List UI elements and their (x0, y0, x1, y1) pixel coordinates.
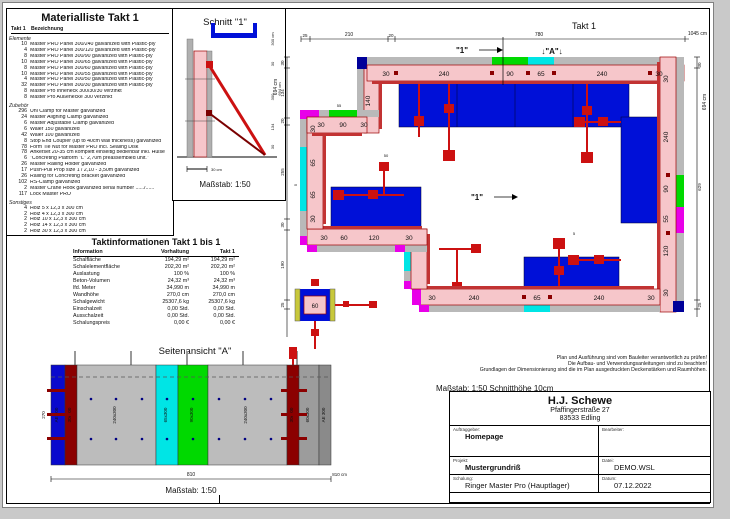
title-block-empty-area (450, 493, 710, 502)
dimension-label: 20 (388, 33, 394, 38)
info-vorhaltung-value: 100 % (137, 271, 189, 278)
info-takt1-value: 100 % (189, 271, 235, 278)
panel-label: 240x300 (112, 406, 117, 424)
file-cell: Datei: DEMO.WSL (599, 457, 710, 474)
title-block-row-formwork: Schalung: Ringer Master Pro (Hauptlager)… (450, 475, 710, 493)
project-cell: Projekt: Mustergrundriß (450, 457, 599, 474)
side-view-scale-label: Maßstab: 1:50 (165, 486, 217, 495)
info-takt1-value: 270,0 cm (189, 292, 235, 299)
wall-segment-label: 30 (647, 295, 655, 302)
side-view-drawing: Seitenansicht "A" AE 300 30x300 240x300 … (39, 343, 351, 501)
top-wall (367, 57, 684, 84)
item-quantity: 117 (7, 192, 30, 198)
info-takt1-value: 194,29 m² (189, 257, 235, 264)
info-takt1-value: 0,00 € (189, 320, 235, 327)
wall-segment-label: 30 (663, 75, 670, 83)
note-line: Grundlagen der Dimensionierung sind die … (353, 367, 707, 373)
takt-info-row: Schalfläche194,29 m²194,29 m² (73, 257, 239, 264)
dimension-label: 30 (280, 222, 285, 228)
info-vorhaltung-value: 194,29 m² (137, 257, 189, 264)
title-block-row-client: Auftraggeber: Homepage Bearbeiter: (450, 426, 710, 457)
dimension-label: 30 (697, 62, 702, 68)
info-vorhaltung-value: 0,00 € (137, 320, 189, 327)
wall-segment-label: 65 (533, 295, 541, 302)
wall-segment-label: 65 (310, 191, 317, 199)
takt-info-row: Auslastung100 %100 % (73, 271, 239, 278)
editor-cell: Bearbeiter: (599, 426, 710, 456)
wall-segment-label: 240 (439, 71, 450, 78)
title-block: H.J. Schewe Pfaffingerstraße 27 83533 Ed… (449, 391, 711, 503)
company-name: H.J. Schewe (450, 395, 710, 407)
push-pull-prop-symbol (206, 61, 265, 155)
info-label: Schalungspreis (73, 320, 137, 327)
material-list-col-qty: Takt 1 (11, 26, 31, 32)
wall-segment-label: 30 (320, 235, 328, 242)
material-list-header: Takt 1 Bezeichnung (11, 26, 169, 34)
dimension-total-label: 694 cm (273, 79, 279, 95)
section-scale-label: Maßstab: 1:50 (199, 180, 251, 189)
info-vorhaltung-value: 34,990 m (137, 285, 189, 292)
takt-info-row: Schalgewicht25307,6 kg25307,6 kg (73, 299, 239, 306)
material-list-col-desc: Bezeichnung (31, 26, 63, 32)
wall-segment-label: 30 (310, 215, 317, 223)
wall-segment-label: 90 (339, 122, 347, 129)
info-takt1-value: 25307,6 kg (189, 299, 235, 306)
panel-label: AE 300 (321, 407, 326, 422)
takt-info-col-information: Information (73, 249, 137, 256)
dimension-label: 30 (280, 60, 285, 66)
wall-segment-label: 90 (506, 71, 514, 78)
material-list-panel: Materialliste Takt 1 Takt 1 Bezeichnung … (6, 8, 174, 236)
takt-info-row: Schalungspreis0,00 €0,00 € (73, 320, 239, 327)
takt-info-panel: Taktinformationen Takt 1 bis 1 Informati… (73, 237, 239, 327)
dimension-label: 190 (280, 261, 285, 269)
info-label: Auslastung (73, 271, 137, 278)
stop-end-label: 60 (312, 304, 319, 310)
info-label: Beton-Volumen (73, 278, 137, 285)
wall-segment-label: 30 (317, 122, 325, 129)
wall-segment-label: 30 (655, 71, 663, 78)
dimension-total-label: 810 cm (332, 472, 347, 477)
client-value: Homepage (453, 432, 596, 441)
dimension-label: 25 (697, 302, 702, 308)
material-list-row: 117Lock Master PRO (7, 192, 173, 198)
dimension-label: 810 (187, 472, 196, 478)
material-list-row: 8Master Pro Außenecke 300 verzinkt (7, 95, 173, 101)
section-view-title: Schnitt "1" (203, 17, 247, 28)
wall-segment-label: 90 (663, 185, 670, 193)
side-view-title: Seitenansicht "A" (159, 346, 232, 357)
dimension-label: 25 (302, 33, 308, 38)
formwork-cell: Schalung: Ringer Master Pro (Hauptlager) (450, 475, 599, 492)
wall-segment-label: 30 (405, 235, 413, 242)
info-vorhaltung-value: 25307,6 kg (137, 299, 189, 306)
panel-label: 240x300 (243, 406, 248, 424)
drawing-sheet-preview: Materialliste Takt 1 Takt 1 Bezeichnung … (0, 0, 730, 519)
takt-info-row: Beton-Volumen24,32 m³24,32 m³ (73, 278, 239, 285)
paper-sheet: Materialliste Takt 1 Takt 1 Bezeichnung … (2, 2, 714, 508)
item-description: Lock Master PRO (30, 192, 173, 198)
takt-info-row: lfd. Meter34,990 m34,990 m (73, 285, 239, 292)
plan-title: Takt 1 (572, 21, 596, 31)
company-street: Pfaffingerstraße 27 (450, 407, 710, 415)
title-block-row-project: Projekt: Mustergrundriß Datei: DEMO.WSL (450, 457, 710, 475)
dimension-label: 55 (337, 103, 342, 108)
item-quantity: 8 (7, 95, 30, 101)
info-label: Wandhöhe (73, 292, 137, 299)
info-vorhaltung-value: 0,00 Std. (137, 306, 189, 313)
date-value: 07.12.2022 (602, 481, 708, 490)
takt-info-title: Taktinformationen Takt 1 bis 1 (73, 237, 239, 247)
wall-segment-label: 30 (310, 125, 317, 133)
section-wall-and-panels (177, 39, 277, 157)
panel-label: 65x300 (163, 407, 168, 422)
section-marker-1: "1" (456, 46, 468, 55)
stop-end-block (295, 279, 377, 349)
info-label: Schalfläche (73, 257, 137, 264)
info-label: Einschalzeit (73, 306, 137, 313)
company-city: 83533 Edling (450, 415, 710, 423)
info-takt1-value: 34,990 m (189, 285, 235, 292)
section-marker-a: ↓"A"↓ (541, 47, 562, 56)
fold-mark (219, 495, 220, 503)
takt-info-col-vorhaltung: Vorhaltung (137, 249, 189, 256)
material-list-title: Materialliste Takt 1 (7, 12, 173, 24)
info-takt1-value: 0,00 Std. (189, 306, 235, 313)
wall-segment-label: 30 (663, 289, 670, 297)
wall-segment-label: 65 (310, 159, 317, 167)
plan-notes: Plan und Ausführung sind vom Bauleiter v… (353, 355, 707, 373)
wall-segment-label: 65 (537, 71, 545, 78)
item-description: Master Pro Außenecke 300 verzinkt (30, 95, 173, 101)
info-vorhaltung-value: 24,32 m³ (137, 278, 189, 285)
file-value: DEMO.WSL (602, 463, 708, 472)
takt-info-header: Information Vorhaltung Takt 1 (73, 249, 239, 257)
wall-segment-label: 240 (594, 295, 605, 302)
section-marker-1-inner: "1" (471, 193, 483, 202)
info-label: Schalelementfläche (73, 264, 137, 271)
item-quantity: 2 (7, 229, 30, 235)
wall-segment-label: 240 (597, 71, 608, 78)
wall-segment-label: 60 (340, 235, 348, 242)
dimension-label: 20 (280, 118, 285, 124)
info-takt1-value: 202,20 m² (189, 264, 235, 271)
dimension-total-label: 1045 cm (688, 31, 707, 37)
wall-segment-label: 30 (428, 295, 436, 302)
dimension-label: 5 (293, 183, 298, 186)
title-block-company: H.J. Schewe Pfaffingerstraße 27 83533 Ed… (450, 392, 710, 426)
project-value: Mustergrundriß (453, 463, 596, 472)
info-takt1-value: 0,00 Std. (189, 313, 235, 320)
dimension-label: 255 (280, 168, 285, 176)
scale-bar: 30 cm (187, 166, 223, 172)
info-vorhaltung-value: 270,0 cm (137, 292, 189, 299)
wall-segment-label: 120 (369, 235, 380, 242)
dimension-label: 210 (345, 32, 354, 38)
dimension-label: 134 (280, 89, 285, 97)
date-cell: Datum: 07.12.2022 (599, 475, 710, 492)
scale-bar-label: 30 cm (211, 167, 223, 172)
takt-info-row: Ausschalzeit0,00 Std.0,00 Std. (73, 313, 239, 320)
dimension-label: 25 (280, 302, 285, 308)
wall-segment-label: 55 (663, 215, 670, 223)
dimension-label: 50 (384, 153, 389, 158)
client-cell: Auftraggeber: Homepage (450, 426, 599, 456)
info-vorhaltung-value: 202,20 m² (137, 264, 189, 271)
takt-info-col-takt1: Takt 1 (189, 249, 235, 256)
dimension-label: 5 (573, 231, 576, 236)
info-vorhaltung-value: 0,00 Std. (137, 313, 189, 320)
dimension-label: 780 (535, 32, 544, 38)
info-label: Ausschalzeit (73, 313, 137, 320)
takt-info-row: Einschalzeit0,00 Std.0,00 Std. (73, 306, 239, 313)
info-takt1-value: 24,32 m³ (189, 278, 235, 285)
dimension-label: 629 (697, 183, 702, 191)
wall-segment-label: 140 (365, 95, 372, 106)
info-label: Schalgewicht (73, 299, 137, 306)
material-list-row: 2Holz 30 x 12,3 x 300 cm (7, 229, 173, 235)
wall-segment-label: 30 (360, 122, 368, 129)
item-description: Holz 30 x 12,3 x 300 cm (30, 229, 173, 235)
formwork-value: Ringer Master Pro (Hauptlager) (453, 481, 596, 490)
height-dimension-label: 270 (41, 411, 46, 419)
info-label: lfd. Meter (73, 285, 137, 292)
editor-label: Bearbeiter: (602, 427, 708, 432)
takt-info-row: Wandhöhe270,0 cm270,0 cm (73, 292, 239, 299)
right-wall (657, 57, 684, 312)
wall-segment-label: 240 (663, 131, 670, 142)
takt-info-row: Schalelementfläche202,20 m²202,20 m² (73, 264, 239, 271)
dimension-total-label: 694 cm (702, 94, 708, 110)
floor-plan-drawing: Takt 1 25 210 20 780 1045 cm 30 134 20 2… (269, 17, 709, 353)
wall-segment-label: 240 (469, 295, 480, 302)
wall-segment-label: 30 (382, 71, 390, 78)
panel-label: 90x300 (189, 407, 194, 422)
wall-segment-label: 120 (663, 245, 670, 256)
